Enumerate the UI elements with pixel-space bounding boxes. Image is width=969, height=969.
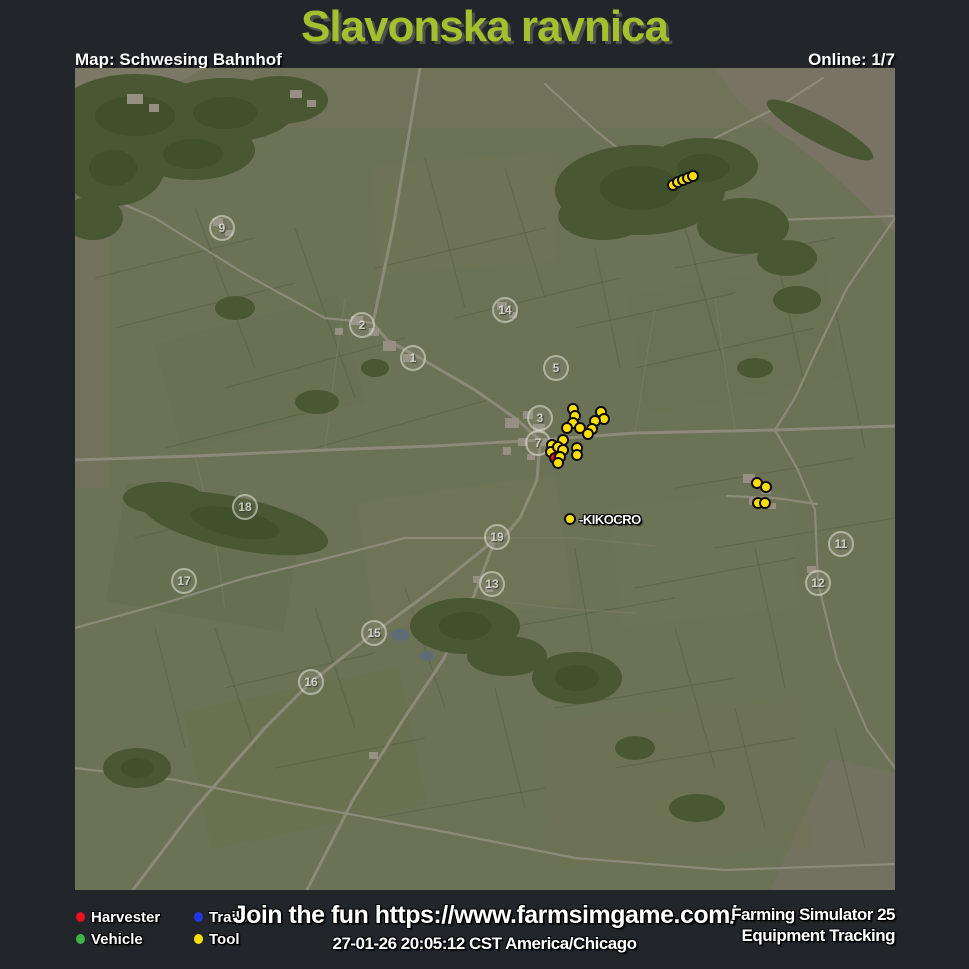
tool-marker [760, 481, 772, 493]
field-number: 17 [171, 568, 197, 594]
tool-marker [552, 457, 564, 469]
field-number: 19 [484, 524, 510, 550]
timestamp: 27-01-26 20:05:12 CST America/Chicago [332, 934, 636, 954]
page: Slavonska ravnica Map: Schwesing Bahnhof… [0, 0, 969, 969]
field-number: 14 [492, 297, 518, 323]
field-number: 9 [209, 215, 235, 241]
map-overlay: 921145371819131715161112-KIKOCRO [75, 68, 895, 890]
legend-label: Harvester [91, 909, 160, 926]
vehicle-dot-icon [76, 934, 85, 944]
promo-link[interactable]: Join the fun https://www.farmsimgame.com… [233, 901, 737, 930]
tool-marker [561, 422, 573, 434]
legend-item-harvester: Harvester [76, 906, 194, 928]
tool-marker [571, 449, 583, 461]
field-number: 2 [349, 312, 375, 338]
field-number: 5 [543, 355, 569, 381]
field-number: 3 [527, 405, 553, 431]
field-number: 1 [400, 345, 426, 371]
field-number: 13 [479, 571, 505, 597]
legend-label: Tool [209, 931, 240, 948]
legend-item-vehicle: Vehicle [76, 928, 194, 950]
field-number: 11 [828, 531, 854, 557]
field-number: 16 [298, 669, 324, 695]
map-view: 921145371819131715161112-KIKOCRO [75, 68, 895, 890]
page-title: Slavonska ravnica [0, 2, 969, 52]
online-count-label: Online: 1/7 [808, 50, 895, 70]
tool-dot-icon [194, 934, 203, 944]
tool-marker [582, 428, 594, 440]
trailer-dot-icon [194, 912, 203, 922]
tool-marker [759, 497, 771, 509]
tool-marker [687, 170, 699, 182]
field-number: 18 [232, 494, 258, 520]
field-number: 15 [361, 620, 387, 646]
legend-item-tool: Tool [194, 928, 304, 950]
brand: Farming Simulator 25 Equipment Tracking [731, 904, 895, 946]
brand-line-1: Farming Simulator 25 [731, 904, 895, 925]
field-number: 12 [805, 570, 831, 596]
map-name-label: Map: Schwesing Bahnhof [75, 50, 282, 70]
legend-label: Vehicle [91, 931, 143, 948]
brand-line-2: Equipment Tracking [731, 925, 895, 946]
harvester-dot-icon [76, 912, 85, 922]
subheader: Map: Schwesing Bahnhof Online: 1/7 [75, 50, 895, 70]
player-label: -KIKOCRO [579, 512, 641, 527]
player-marker: -KIKOCRO [564, 513, 576, 525]
